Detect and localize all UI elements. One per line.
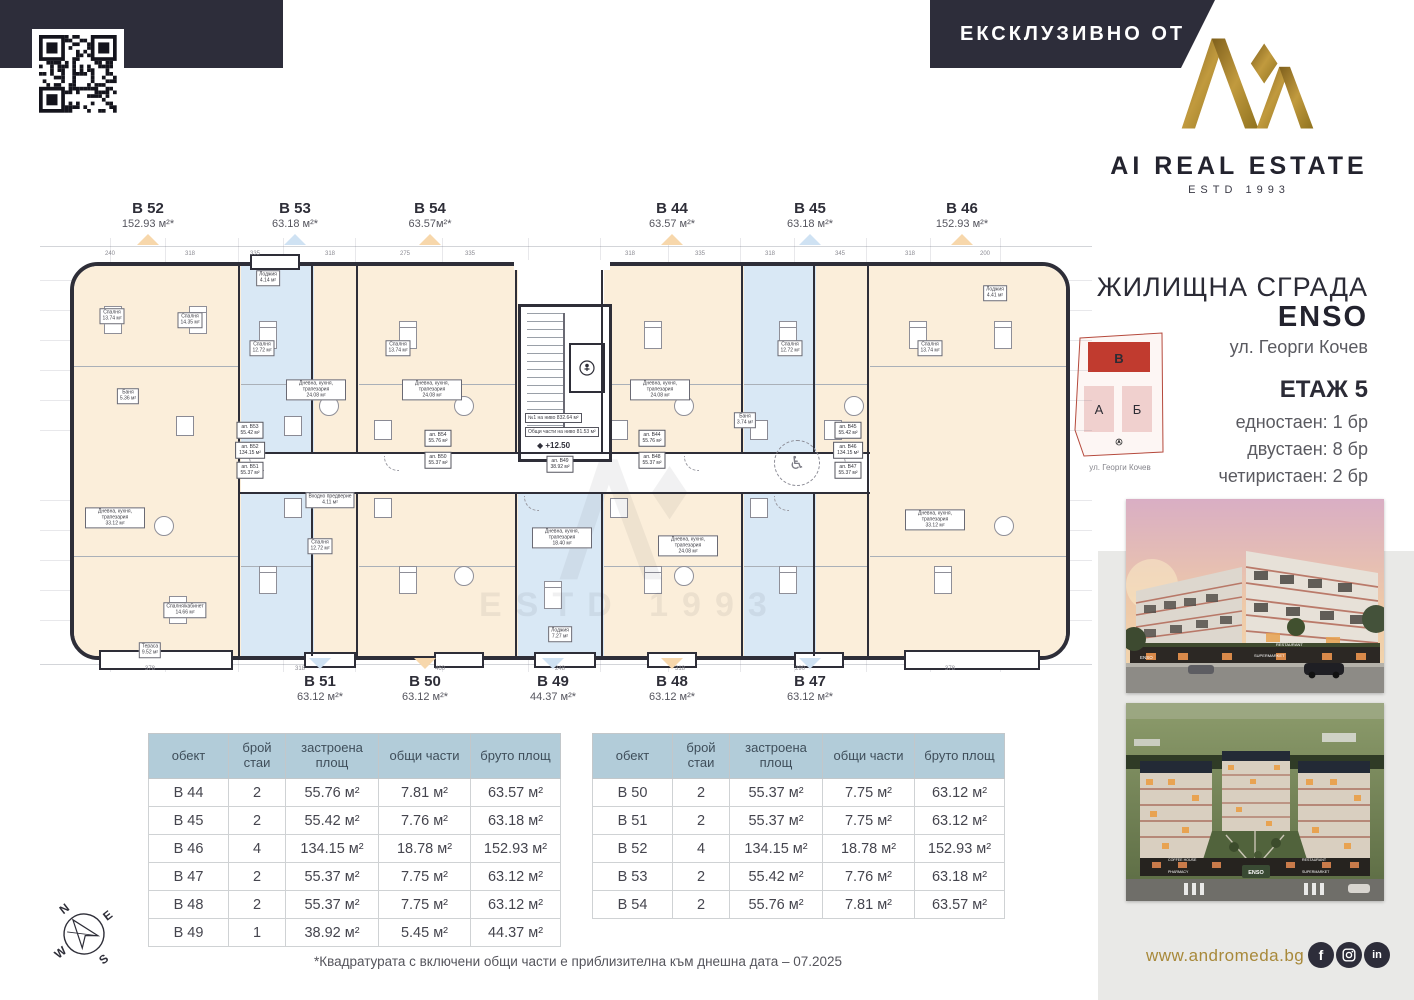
linkedin-icon[interactable]: in xyxy=(1364,942,1390,968)
stairs-icon xyxy=(527,313,565,429)
dimension-number: 345 xyxy=(835,251,845,257)
table-cell: 2 xyxy=(229,779,286,807)
site-block-a-label: А xyxy=(1095,402,1104,417)
bathroom xyxy=(750,498,768,518)
project-address: ул. Георги Кочев xyxy=(1230,337,1368,358)
table-cell: 63.12 м² xyxy=(471,863,561,891)
room-label: Лоджия4.14 м² xyxy=(256,270,280,286)
bed-furniture xyxy=(644,321,662,349)
table-cell: 63.12 м² xyxy=(471,891,561,919)
unit-label-b50: B 50 63.12 м²* xyxy=(370,658,480,703)
room-label: Спалня13.74 м² xyxy=(385,340,410,356)
unit-area: 44.37 м²* xyxy=(498,691,608,703)
room-label: Дневна, кухня, трапезария24.08 м² xyxy=(658,535,718,556)
dimension-number: 240 xyxy=(105,251,115,257)
table-cell: 2 xyxy=(229,863,286,891)
column-header: бруто площ xyxy=(915,734,1005,779)
unit-label-b48: B 48 63.12 м²* xyxy=(617,658,727,703)
qr-code-image xyxy=(39,35,117,113)
core-gap xyxy=(514,260,610,270)
column-header: обект xyxy=(149,734,229,779)
table-cell: 63.57 м² xyxy=(915,891,1005,919)
mix-studio: едностаен: 1 бр xyxy=(1236,412,1368,433)
unit-pointer xyxy=(799,658,821,669)
column-header: застроена площ xyxy=(286,734,379,779)
apartment-b53-living xyxy=(314,266,359,454)
unit-pointer xyxy=(661,658,683,669)
bed-furniture xyxy=(934,566,952,594)
apartment-plate: ап. B4755.37 м² xyxy=(834,462,861,479)
room-label: Баня3.74 м² xyxy=(734,412,756,428)
table-cell: 55.42 м² xyxy=(286,807,379,835)
project-title: ЖИЛИЩНА СГРАДА xyxy=(1097,272,1368,303)
table-cell: B 47 xyxy=(149,863,229,891)
dimension-number: 318 xyxy=(765,251,775,257)
apartment-plate: ап. B4855.37 м² xyxy=(638,452,665,469)
project-name: ENSO xyxy=(1278,301,1368,334)
table-cell: 55.42 м² xyxy=(730,863,823,891)
apartment-b47-living xyxy=(816,494,870,656)
apartment-plate: ап. B4455.76 м² xyxy=(638,430,665,447)
render2-sign-restaurant: RESTAURANT xyxy=(1302,858,1327,862)
table-cell: 55.37 м² xyxy=(286,863,379,891)
brand-logo-name: AI REAL ESTATE xyxy=(1093,152,1385,181)
room-label: Спалня/кабинет14.66 м² xyxy=(163,602,206,618)
bathroom xyxy=(374,498,392,518)
table-cell: B 48 xyxy=(149,891,229,919)
unit-label-b49: B 49 44.37 м²* xyxy=(498,658,608,703)
unit-id: B 46 xyxy=(907,200,1017,217)
table-row: B 47255.37 м²7.75 м²63.12 м² xyxy=(149,863,561,891)
table-cell: 55.76 м² xyxy=(730,891,823,919)
unit-area: 63.57м²* xyxy=(375,218,485,230)
interior-wall xyxy=(515,494,517,656)
bed-furniture xyxy=(259,566,277,594)
table-cell: 63.12 м² xyxy=(915,779,1005,807)
dimension-number: 318 xyxy=(905,251,915,257)
column-header: общи части xyxy=(379,734,471,779)
room-divider xyxy=(870,366,1066,367)
render2-sign-enso: ENSO xyxy=(1248,870,1264,876)
apartment-b46-area xyxy=(870,266,1066,656)
table-row: B 48255.37 м²7.75 м²63.12 м² xyxy=(149,891,561,919)
dimension-number: 318 xyxy=(625,251,635,257)
table-row: B 44255.76 м²7.81 м²63.57 м² xyxy=(149,779,561,807)
table-cell: 2 xyxy=(673,779,730,807)
unit-id: B 44 xyxy=(617,200,727,217)
table-cell: 38.92 м² xyxy=(286,919,379,947)
dim-chain-line xyxy=(40,246,1092,247)
unit-id: B 52 xyxy=(93,200,203,217)
interior-wall xyxy=(813,266,815,452)
apartment-plate: ап. B5355.42 м² xyxy=(236,422,263,439)
apartment-plate: ап. B52134.15 м² xyxy=(235,442,265,459)
room-divider xyxy=(74,556,239,557)
table-cell: 7.75 м² xyxy=(379,863,471,891)
apartment-b52-area xyxy=(74,266,241,656)
site-block-b-label: Б xyxy=(1133,402,1142,417)
site-block-v-label: В xyxy=(1114,351,1123,366)
dimension-number: 335 xyxy=(465,251,475,257)
unit-area: 63.12 м²* xyxy=(265,691,375,703)
dining-table-furniture xyxy=(994,516,1014,536)
table-row: B 524134.15 м²18.78 м²152.93 м² xyxy=(593,835,1005,863)
apartment-b50-area xyxy=(359,494,518,656)
room-label: Дневна, кухня, трапезария18.40 м² xyxy=(532,527,592,548)
elevator xyxy=(569,343,605,393)
compass-e: E xyxy=(100,908,115,924)
unit-pointer xyxy=(137,234,159,245)
unit-label-b45: B 45 63.18 м²* xyxy=(755,200,865,245)
room-divider xyxy=(359,566,516,567)
table-row: B 45255.42 м²7.76 м²63.18 м² xyxy=(149,807,561,835)
site-plan: В А Б xyxy=(1072,330,1168,462)
unit-pointer xyxy=(309,658,331,669)
table-cell: B 49 xyxy=(149,919,229,947)
room-label: Спалня13.74 м² xyxy=(917,340,942,356)
dimension-number: 318 xyxy=(325,251,335,257)
room-label: Лоджия4.41 м² xyxy=(983,285,1007,301)
table-cell: 2 xyxy=(673,807,730,835)
render2-car xyxy=(1348,884,1370,893)
table-row: B 49138.92 м²5.45 м²44.37 м² xyxy=(149,919,561,947)
compass-s: S xyxy=(96,951,111,967)
room-label: Дневна, кухня, трапезария33.12 м² xyxy=(85,507,145,528)
mix-four-room: четиристаен: 2 бр xyxy=(1219,466,1369,487)
apartment-plate: ап. B4555.42 м² xyxy=(834,422,861,439)
compass-w: W xyxy=(52,943,70,961)
table-row: B 464134.15 м²18.78 м²152.93 м² xyxy=(149,835,561,863)
bed-furniture xyxy=(994,321,1012,349)
unit-label-b44: B 44 63.57 м²* xyxy=(617,200,727,245)
unit-id: B 48 xyxy=(617,673,727,690)
table-cell: 7.81 м² xyxy=(823,891,915,919)
interior-wall xyxy=(867,266,869,656)
bathroom xyxy=(284,416,302,436)
room-divider xyxy=(744,566,868,567)
interior-wall xyxy=(515,266,517,452)
dimension-number: 275 xyxy=(400,251,410,257)
unit-area: 63.18 м²* xyxy=(240,218,350,230)
column-header: обект xyxy=(593,734,673,779)
column-header: брой стаи xyxy=(673,734,730,779)
table-cell: 134.15 м² xyxy=(286,835,379,863)
qr-code[interactable] xyxy=(32,29,124,119)
table-cell: 2 xyxy=(673,863,730,891)
bathroom xyxy=(284,498,302,518)
table-cell: 152.93 м² xyxy=(471,835,561,863)
apartment-plate: ап. B5055.37 м² xyxy=(424,452,451,469)
render2-left-building xyxy=(1140,761,1212,859)
building-render-aerial: COFFEE HOUSE RESTAURANT PHARMACY SUPERMA… xyxy=(1126,703,1384,901)
room-label: Спалня12.72 м² xyxy=(249,340,274,356)
room-label: Спалня13.74 м² xyxy=(99,308,124,324)
dimension-number: 200 xyxy=(980,251,990,257)
unit-pointer xyxy=(661,234,683,245)
table-cell: B 46 xyxy=(149,835,229,863)
room-divider xyxy=(870,556,1066,557)
dining-table-furniture xyxy=(154,516,174,536)
table-cell: 18.78 м² xyxy=(379,835,471,863)
unit-pointer xyxy=(414,658,436,669)
room-label: Входно предверие4.11 м² xyxy=(305,492,354,508)
apartment-b51-area xyxy=(241,494,314,656)
unit-area: 63.18 м²* xyxy=(755,218,865,230)
room-label: Спалня12.72 м² xyxy=(307,538,332,554)
unit-label-b51: B 51 63.12 м²* xyxy=(265,658,375,703)
unit-pointer xyxy=(951,234,973,245)
table-cell: 7.76 м² xyxy=(823,863,915,891)
interior-wall xyxy=(311,266,313,452)
room-label: Спалня12.72 м² xyxy=(777,340,802,356)
unit-pointer xyxy=(419,234,441,245)
compass-n: N xyxy=(57,901,72,917)
facebook-icon[interactable]: f xyxy=(1308,942,1334,968)
building-render-street: RESTAURANT SUPERMARKET ENSO xyxy=(1126,499,1384,693)
render2-center-building xyxy=(1222,751,1290,831)
exclusive-banner-text: ЕКСКЛУЗИВНО ОТ xyxy=(930,23,1185,46)
compass-rose: N E S W xyxy=(42,888,126,976)
unit-id: B 54 xyxy=(375,200,485,217)
table-cell: 2 xyxy=(673,891,730,919)
table-cell: 134.15 м² xyxy=(730,835,823,863)
unit-id: B 50 xyxy=(370,673,480,690)
interior-wall xyxy=(356,266,358,452)
room-label: Спалня14.35 м² xyxy=(177,312,202,328)
column-header: бруто площ xyxy=(471,734,561,779)
render2-right-building xyxy=(1298,761,1370,859)
table-row: B 51255.37 м²7.75 м²63.12 м² xyxy=(593,807,1005,835)
room-label: Дневна, кухня, трапезария24.08 м² xyxy=(286,379,346,400)
interior-wall xyxy=(813,494,815,656)
table-cell: 7.81 м² xyxy=(379,779,471,807)
room-divider xyxy=(74,366,239,367)
apartment-plate: ап. B46134.15 м² xyxy=(833,442,863,459)
unit-area: 152.93 м²* xyxy=(907,218,1017,230)
table-row: B 50255.37 м²7.75 м²63.12 м² xyxy=(593,779,1005,807)
bathroom xyxy=(374,420,392,440)
room-label: Дневна, кухня, трапезария33.12 м² xyxy=(905,509,965,530)
unit-pointer xyxy=(799,234,821,245)
room-label: Баня5.36 м² xyxy=(117,388,139,404)
brand-logo-estd: ESTD 1993 xyxy=(1093,184,1385,196)
table-cell: 44.37 м² xyxy=(471,919,561,947)
interior-wall xyxy=(356,494,358,656)
table-cell: 7.75 м² xyxy=(379,891,471,919)
elevator-icon xyxy=(579,360,595,376)
unit-pointer xyxy=(542,658,564,669)
unit-label-b54: B 54 63.57м²* xyxy=(375,200,485,245)
mix-two-room: двустаен: 8 бр xyxy=(1247,439,1368,460)
site-plan-street: ул. Георги Кочев xyxy=(1060,463,1180,472)
unit-label-b46: B 46 152.93 м²* xyxy=(907,200,1017,245)
render1-sign-restaurant: RESTAURANT xyxy=(1276,642,1303,647)
table-row: B 54255.76 м²7.81 м²63.57 м² xyxy=(593,891,1005,919)
floor-label: ЕТАЖ 5 xyxy=(1280,376,1368,404)
area-table-left: обектброй стаизастроена площобщи частибр… xyxy=(148,733,561,947)
dimension-number: 378 xyxy=(945,666,955,672)
render2-sign-supermarket: SUPERMARKET xyxy=(1302,870,1330,874)
table-cell: 55.37 м² xyxy=(286,891,379,919)
table-cell: 55.37 м² xyxy=(730,779,823,807)
unit-area: 63.12 м²* xyxy=(755,691,865,703)
column-header: общи части xyxy=(823,734,915,779)
room-divider xyxy=(744,384,868,385)
wheelchair-icon: ♿ xyxy=(774,440,820,486)
table-cell: 2 xyxy=(229,891,286,919)
table-cell: 18.78 м² xyxy=(823,835,915,863)
bed-furniture xyxy=(399,566,417,594)
unit-pointer xyxy=(284,234,306,245)
balcony xyxy=(99,650,233,670)
render1-sign-enso: ENSO xyxy=(1140,655,1153,660)
dining-table-furniture xyxy=(844,396,864,416)
table-cell: 7.76 м² xyxy=(379,807,471,835)
interior-wall xyxy=(311,494,313,656)
table-cell: 1 xyxy=(229,919,286,947)
apartment-plate: ап. B5455.76 м² xyxy=(424,430,451,447)
dimension-number: 335 xyxy=(695,251,705,257)
room-label: Тераса9.52 м² xyxy=(139,642,161,658)
room-label: Лоджия7.27 м² xyxy=(548,626,572,642)
column-header: брой стаи xyxy=(229,734,286,779)
apartment-plate: ап. B4938.92 м² xyxy=(546,456,573,473)
table-cell: 55.37 м² xyxy=(730,807,823,835)
apartment-b51-living xyxy=(314,494,359,656)
unit-id: B 51 xyxy=(265,673,375,690)
area-table-right: обектброй стаизастроена площобщи частибр… xyxy=(592,733,1005,919)
table-cell: B 54 xyxy=(593,891,673,919)
dining-table-furniture xyxy=(454,566,474,586)
table-cell: 4 xyxy=(673,835,730,863)
instagram-icon[interactable] xyxy=(1336,942,1362,968)
room-label: Дневна, кухня, трапезария24.08 м² xyxy=(630,379,690,400)
render2-sign-coffee: COFFEE HOUSE xyxy=(1168,858,1197,862)
unit-area: 63.12 м²* xyxy=(617,691,727,703)
table-row: B 53255.42 м²7.76 м²63.18 м² xyxy=(593,863,1005,891)
balcony xyxy=(904,650,1040,670)
table-cell: 7.75 м² xyxy=(823,779,915,807)
table-cell: B 51 xyxy=(593,807,673,835)
table-cell: 63.18 м² xyxy=(915,863,1005,891)
column-header: застроена площ xyxy=(730,734,823,779)
unit-label-b53: B 53 63.18 м²* xyxy=(240,200,350,245)
unit-id: B 47 xyxy=(755,673,865,690)
table-cell: 5.45 м² xyxy=(379,919,471,947)
table-cell: 63.57 м² xyxy=(471,779,561,807)
unit-id: B 45 xyxy=(755,200,865,217)
table-cell: 63.12 м² xyxy=(915,807,1005,835)
render2-sign-pharmacy: PHARMACY xyxy=(1168,870,1189,874)
table-cell: 55.76 м² xyxy=(286,779,379,807)
table-cell: B 50 xyxy=(593,779,673,807)
table-cell: 2 xyxy=(229,807,286,835)
table-cell: B 53 xyxy=(593,863,673,891)
unit-id: B 53 xyxy=(240,200,350,217)
dimension-number: 378 xyxy=(145,666,155,672)
table-cell: B 52 xyxy=(593,835,673,863)
bed-furniture xyxy=(779,566,797,594)
unit-area: 63.57 м²* xyxy=(617,218,727,230)
bathroom xyxy=(176,416,194,436)
unit-id: B 49 xyxy=(498,673,608,690)
dimension-number: 318 xyxy=(185,251,195,257)
table-cell: 7.75 м² xyxy=(823,807,915,835)
footnote: *Квадратурата с включени общи части е пр… xyxy=(148,954,1008,969)
dimension-number: 335 xyxy=(250,251,260,257)
unit-area: 63.12 м²* xyxy=(370,691,480,703)
room-label: Дневна, кухня, трапезария24.08 м² xyxy=(402,379,462,400)
unit-area: 152.93 м²* xyxy=(93,218,203,230)
table-cell: 152.93 м² xyxy=(915,835,1005,863)
table-cell: 4 xyxy=(229,835,286,863)
table-cell: 63.18 м² xyxy=(471,807,561,835)
table-cell: B 44 xyxy=(149,779,229,807)
unit-label-b52: B 52 152.93 м²* xyxy=(93,200,203,245)
brand-logo-icon xyxy=(1170,14,1320,148)
unit-label-b47: B 47 63.12 м²* xyxy=(755,658,865,703)
render1-sign-supermarket: SUPERMARKET xyxy=(1254,653,1285,658)
website-link[interactable]: www.andromeda.bg xyxy=(1146,946,1304,966)
table-cell: B 45 xyxy=(149,807,229,835)
apartment-plate: ап. B5155.37 м² xyxy=(236,462,263,479)
